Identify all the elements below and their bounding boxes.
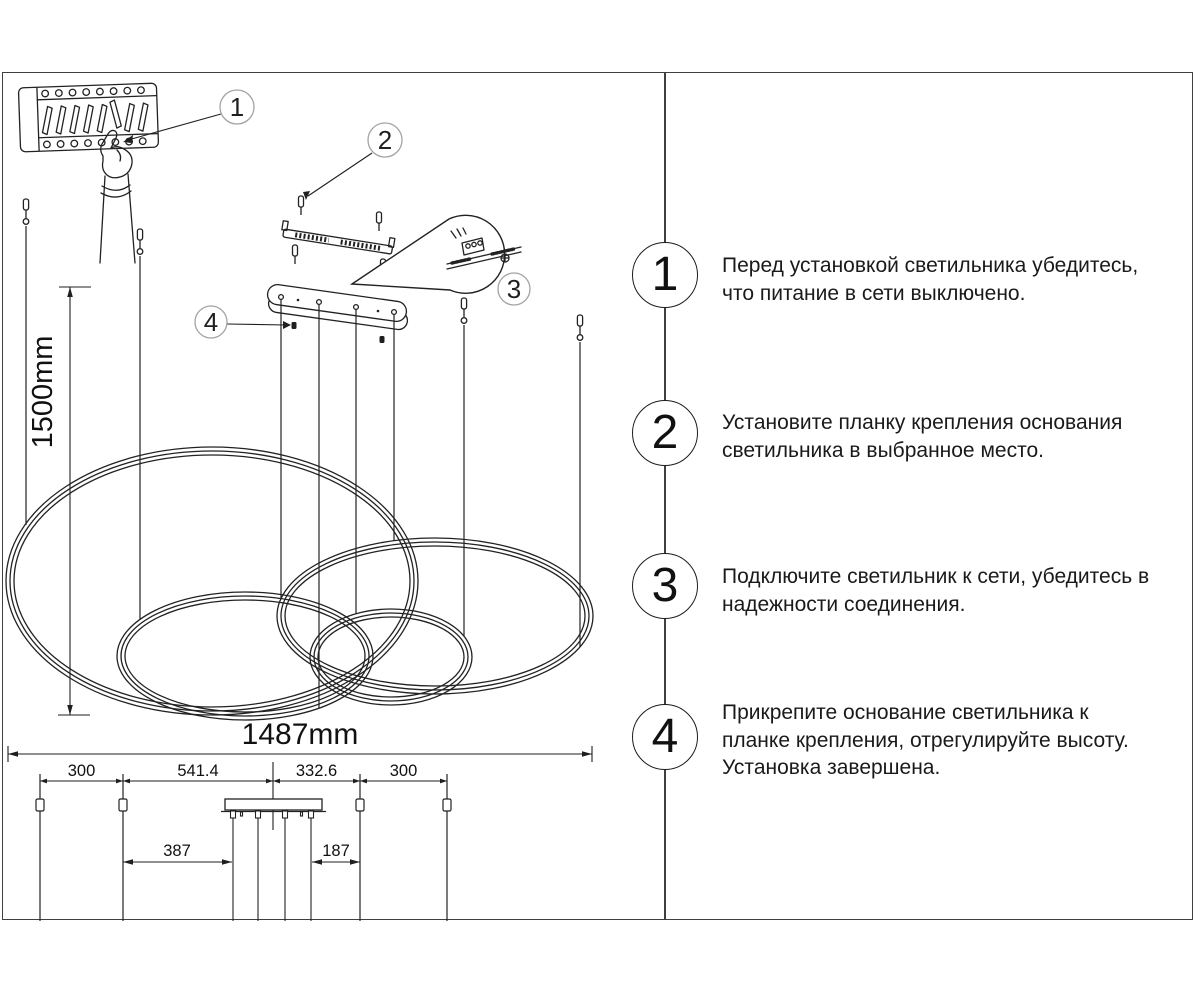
bar-screw-top-left <box>299 196 304 215</box>
step-4-line-2: планке крепления, отрегулируйте высоту. <box>722 727 1172 755</box>
offset-left-label: 387 <box>163 842 191 860</box>
dimension-offsets: 387 187 <box>123 842 360 865</box>
step-1-number: 1 <box>652 251 679 299</box>
spacing-right-label: 300 <box>390 762 418 780</box>
callout-2: 2 <box>303 123 402 200</box>
hand-flipping-switch <box>100 130 135 263</box>
step-3-circle: 3 <box>632 553 698 619</box>
canopy-fix-screw-right <box>380 336 385 343</box>
ring-medium-center <box>117 592 373 720</box>
canopy-fix-screw-left <box>292 322 297 329</box>
step-3-line-2: надежности соединения. <box>722 591 1172 619</box>
spacing-left-label: 300 <box>68 762 96 780</box>
callout-2-number: 2 <box>378 125 392 155</box>
total-width-label: 1487mm <box>242 718 359 751</box>
callout-4: 4 <box>195 306 291 338</box>
canopy-plan-view <box>225 799 322 810</box>
bar-screw-top-right <box>377 212 382 231</box>
step-4-line-3: Установка завершена. <box>722 754 1172 782</box>
light-rings <box>6 447 593 720</box>
spacing-mid-left-label: 541.4 <box>177 762 218 780</box>
callout-1: 1 <box>123 90 254 143</box>
step-2-line-1: Установите планку крепления основания <box>722 409 1172 437</box>
spacing-mid-right-label: 332.6 <box>296 762 337 780</box>
step-4-circle: 4 <box>632 704 698 770</box>
canopy-base-plate <box>266 283 408 343</box>
installation-instruction-sheet: { "panel": { "steps": [ {"number":"1","l… <box>0 0 1200 1000</box>
callout-3-number: 3 <box>507 274 521 304</box>
step-1-line-2: что питание в сети выключено. <box>722 280 1172 308</box>
step-3-text: Подключите светильник к сети, убедитесь … <box>722 563 1172 618</box>
step-4-text: Прикрепите основание светильника к планк… <box>722 699 1172 782</box>
step-2-number: 2 <box>652 409 679 457</box>
mounting-bar <box>281 196 395 278</box>
dimension-spacings: 300 541.4 332.6 300 <box>40 762 447 830</box>
bar-screw-bottom-left <box>293 245 298 264</box>
step-4-line-1: Прикрепите основание светильника к <box>722 699 1172 727</box>
step-2-line-2: светильника в выбранное место. <box>722 437 1172 465</box>
offset-right-label: 187 <box>322 842 350 860</box>
drop-height-label: 1500mm <box>27 336 59 449</box>
step-2-text: Установите планку крепления основания св… <box>722 409 1172 464</box>
step-1-line-1: Перед установкой светильника убедитесь, <box>722 252 1172 280</box>
step-1-text: Перед установкой светильника убедитесь, … <box>722 252 1172 307</box>
callout-1-number: 1 <box>230 92 244 122</box>
step-3-line-1: Подключите светильник к сети, убедитесь … <box>722 563 1172 591</box>
circuit-breaker-panel <box>18 83 158 152</box>
step-1-circle: 1 <box>632 242 698 308</box>
technical-drawing: 1 2 <box>0 0 666 1000</box>
step-2-circle: 2 <box>632 400 698 466</box>
step-3-number: 3 <box>652 562 679 610</box>
callout-4-number: 4 <box>204 307 218 337</box>
step-4-number: 4 <box>652 713 679 761</box>
dimension-total-width: 1487mm <box>8 718 592 762</box>
plan-elevation <box>36 774 451 921</box>
